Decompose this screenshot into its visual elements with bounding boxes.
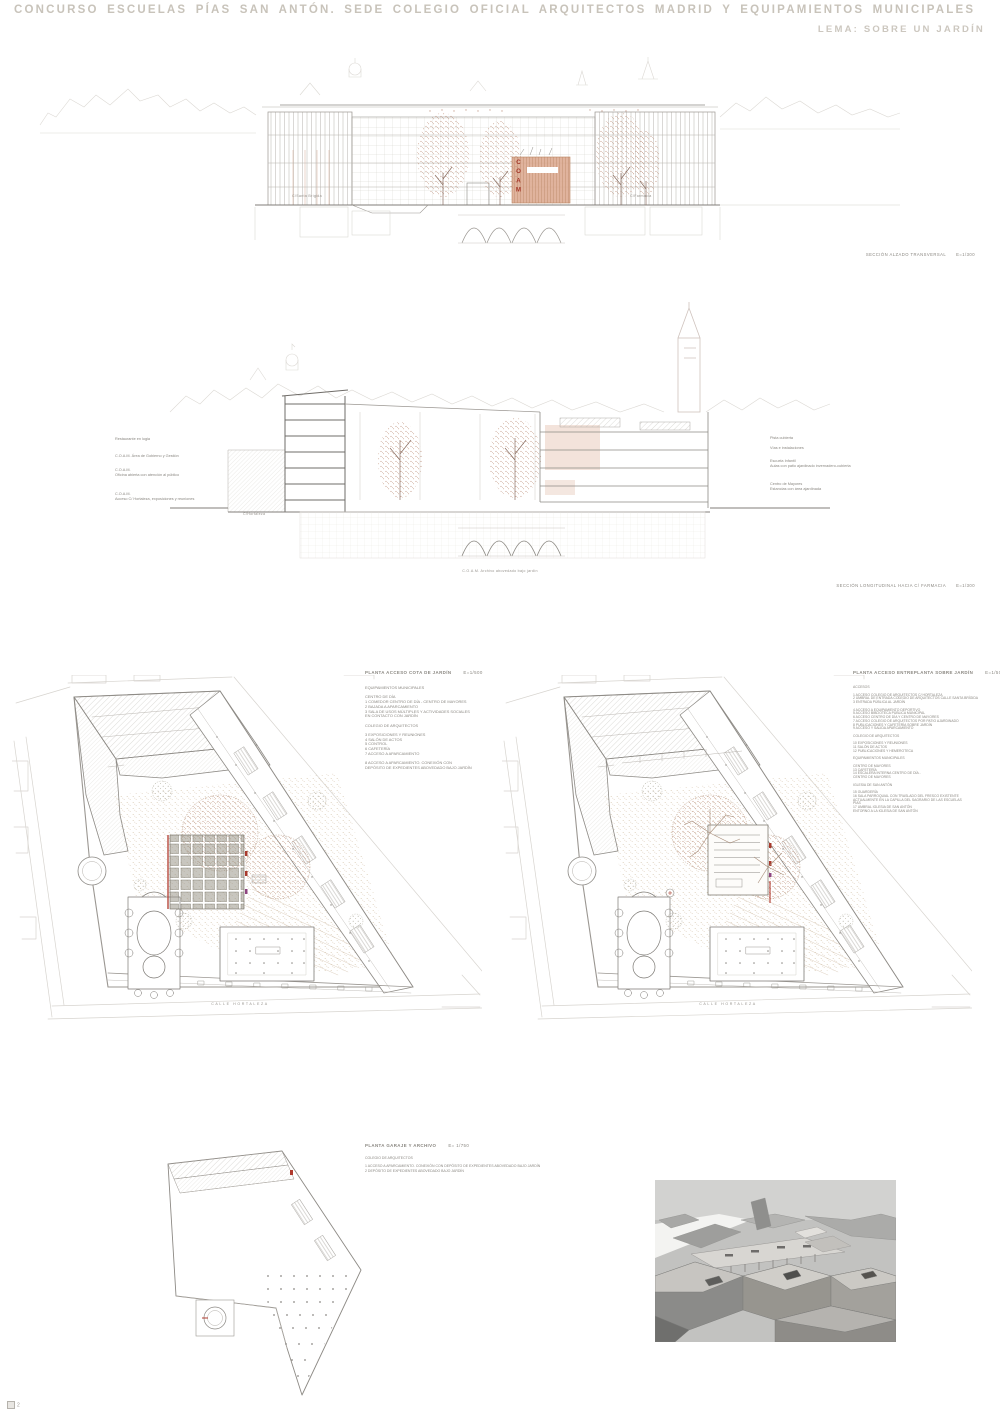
note-vias: Vías e instalaciones bbox=[770, 446, 905, 451]
roof-pergola-dots bbox=[429, 109, 638, 111]
interior-trees bbox=[378, 418, 541, 500]
legend-line: DEPÓSITO DE EXPEDIENTES ABOVEDADO BAJO J… bbox=[365, 766, 495, 771]
model-photo bbox=[655, 1180, 896, 1342]
plan-garaje-drawing bbox=[140, 1148, 460, 1398]
section-cut bbox=[170, 390, 830, 512]
skyline-background-2 bbox=[170, 344, 830, 412]
plan-title-scale: E= 1/750 bbox=[448, 1143, 469, 1148]
plan-entreplanta-legend: ACCESOS1 ACCESO COLEGIO DE ARQUITECTOS C… bbox=[853, 686, 1000, 814]
page-subtitle-lema: LEMA: SOBRE UN JARDÍN bbox=[700, 24, 985, 35]
plan-jardin-legend: EQUIPAMIENTOS MUNICIPALESCENTRO DE DÍA1 … bbox=[365, 686, 495, 771]
caption-scale: E=1/300 bbox=[956, 583, 975, 588]
plan-title-text: PLANTA GARAJE Y ARCHIVO bbox=[365, 1143, 436, 1148]
plan-garaje-title: PLANTA GARAJE Y ARCHIVOE= 1/750 bbox=[365, 1143, 469, 1148]
plan-title-scale: E=1/500 bbox=[463, 670, 482, 675]
ramp-circle bbox=[196, 1300, 234, 1336]
street-label-hortaleza-plan1: CALLE HORTALEZA bbox=[180, 1002, 300, 1006]
caption-text: SECCIÓN LONGITUDINAL HACIA C/ FARMACIA bbox=[836, 583, 946, 588]
note-restaurante: Restaurante en logia bbox=[115, 437, 250, 442]
plan-title-scale: E=1/500 bbox=[985, 670, 1000, 675]
note-centro-mayores: Centro de Mayores Estancias con área aja… bbox=[770, 482, 905, 491]
caption-transversal: SECCIÓN ALZADO TRANSVERSALE=1/300 bbox=[700, 252, 975, 257]
note-gobierno: C.O.A.M. Área de Gobierno y Gestión bbox=[115, 454, 250, 459]
caption-archivo: C.O.A.M. Archivo abovedado bajo jardín bbox=[400, 569, 600, 573]
caption-longitudinal: SECCIÓN LONGITUDINAL HACIA C/ FARMACIAE=… bbox=[700, 583, 975, 588]
caption-text: SECCIÓN ALZADO TRANSVERSAL bbox=[866, 252, 946, 257]
competition-board: CONCURSO ESCUELAS PÍAS SAN ANTÓN. SEDE C… bbox=[0, 0, 1000, 1420]
stamp-icon bbox=[7, 1401, 15, 1409]
plan-entreplanta-title: PLANTA ACCESO ENTREPLANTA SOBRE JARDÍNE=… bbox=[853, 670, 1000, 675]
church-tower bbox=[678, 302, 700, 412]
plan-title-text: PLANTA ACCESO ENTREPLANTA SOBRE JARDÍN bbox=[853, 670, 973, 675]
note-oficina: C.O.A.M. Oficina abierta con atención al… bbox=[115, 468, 250, 477]
street-label-farmacia: C/Farmacia bbox=[630, 194, 652, 198]
note-escuela-infantil: Escuela Infantil Aulas con patio ajardin… bbox=[770, 459, 905, 468]
page-number-text: 2 bbox=[17, 1402, 20, 1408]
page-title: CONCURSO ESCUELAS PÍAS SAN ANTÓN. SEDE C… bbox=[14, 4, 975, 16]
plan-title-text: PLANTA ACCESO COTA DE JARDÍN bbox=[365, 670, 451, 675]
basement bbox=[255, 207, 720, 240]
street-label-hortaleza-section: C/Hortaleza bbox=[243, 512, 265, 516]
caption-scale: E=1/300 bbox=[956, 252, 975, 257]
underground bbox=[300, 512, 705, 558]
vaults-under bbox=[458, 215, 565, 243]
note-pista: Pista cubierta bbox=[770, 436, 905, 441]
plan-garaje-legend: COLEGIO DE ARQUITECTOS1 ACCESO A APARCAM… bbox=[365, 1156, 625, 1173]
plan-jardin-title: PLANTA ACCESO COTA DE JARDÍNE=1/500 bbox=[365, 670, 483, 675]
legend-line: 2 DEPÓSITO DE EXPEDIENTES ABOVEDADO BAJO… bbox=[365, 1169, 625, 1173]
street-label-hortaleza-plan2: CALLE HORTALEZA bbox=[668, 1002, 788, 1006]
page-number: 2 bbox=[7, 1401, 20, 1409]
street-label-santa-brigida: C/Santa Brígida bbox=[292, 194, 322, 198]
note-acceso-hortaleza: C.O.A.M. Acceso C/ Hortaleza, exposicion… bbox=[115, 492, 250, 501]
legend-line: ENTORNO A LA IGLESIA DE SAN ANTÓN bbox=[853, 810, 1000, 814]
coam-sign: COAM bbox=[514, 159, 523, 201]
